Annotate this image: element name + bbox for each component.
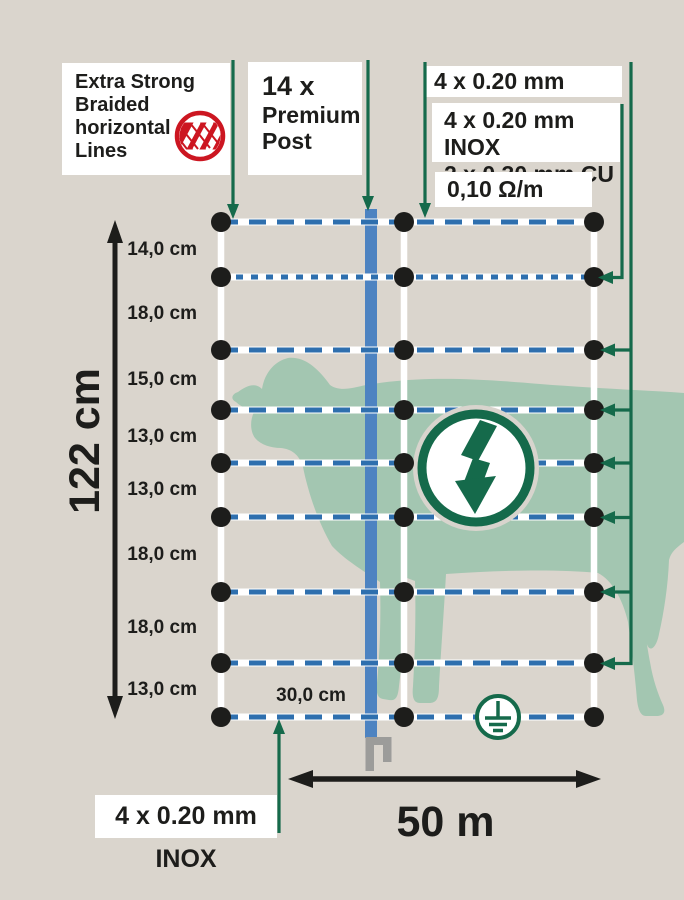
net-knot-dots	[211, 212, 604, 727]
braided-line-3: horizontal	[75, 117, 230, 140]
conductor-spec-line1: 4 x 0.20 mm INOX	[444, 107, 620, 161]
spacing-label-4: 13,0 cm	[115, 427, 197, 447]
spacing-label-8: 13,0 cm	[115, 680, 197, 700]
premium-post	[365, 209, 377, 738]
electric-lightning-icon	[413, 405, 539, 531]
ground-spike	[366, 737, 392, 771]
spacing-label-3: 15,0 cm	[115, 370, 197, 390]
top-wire-spec-box: 4 x 0.20 mm INOX	[424, 66, 622, 97]
net-line-bases	[221, 222, 594, 717]
green-arrowheads	[227, 196, 615, 734]
length-arrow	[288, 770, 601, 788]
net-length-label: 50 m	[383, 797, 508, 847]
spacing-label-7: 18,0 cm	[115, 618, 197, 638]
ground-symbol-icon	[477, 696, 519, 738]
bottom-wire-spec-box: 4 x 0.20 mm INOX	[95, 795, 277, 838]
braided-line-4: Lines	[75, 140, 230, 163]
spacing-label-2: 18,0 cm	[115, 304, 197, 324]
spacing-label-1: 14,0 cm	[115, 240, 197, 260]
sheep-net-diagram: Extra Strong Braided horizontal Lines 14…	[0, 0, 684, 900]
post-count: 14 x	[262, 70, 362, 102]
net-vertical-strings	[221, 222, 594, 717]
premium-post-box: 14 x Premium Post	[248, 62, 362, 175]
braided-lines-box: Extra Strong Braided horizontal Lines	[62, 63, 230, 175]
braided-line-1: Extra Strong	[75, 71, 230, 94]
height-arrow	[107, 220, 123, 719]
post-name-line2: Post	[262, 128, 362, 154]
net-height-label: 122 cm	[61, 356, 107, 526]
resistance-box: 0,10 Ω/m	[435, 172, 592, 207]
spacing-label-6: 18,0 cm	[115, 545, 197, 565]
sheep-silhouette	[232, 358, 684, 716]
spacing-label-5: 13,0 cm	[115, 480, 197, 500]
net-line-dashes	[221, 222, 594, 717]
conductor-spec-box: 4 x 0.20 mm INOX 2 x 0.30 mm CU	[432, 103, 620, 162]
braided-line-2: Braided	[75, 94, 230, 117]
vertical-spacing-label: 30,0 cm	[276, 686, 346, 706]
post-name-line1: Premium	[262, 102, 362, 128]
